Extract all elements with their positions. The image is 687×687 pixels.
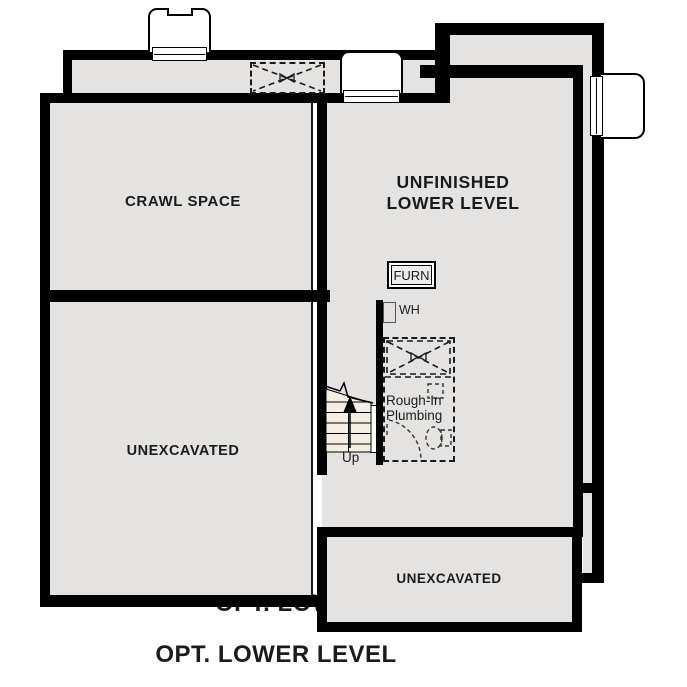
rough-in-plumbing-label: Rough-In Plumbing (386, 394, 442, 423)
plan-title: OPT. LOWER LEVEL (155, 641, 396, 669)
unfinished-lower-level-label: UNFINISHED LOWER LEVEL (387, 172, 520, 214)
unexcavated-left-label: UNEXCAVATED (127, 443, 240, 459)
stairs-up-label: Up (342, 450, 359, 465)
unfinished-line1: UNFINISHED (397, 172, 510, 192)
crawl-space-label: CRAWL SPACE (125, 193, 241, 210)
unfinished-line2: LOWER LEVEL (387, 193, 520, 213)
water-heater-label: WH (399, 303, 420, 317)
unexcavated-bottom-label: UNEXCAVATED (396, 571, 501, 586)
floor-plan: OPT. LOWER LEVEL FURN (0, 0, 687, 687)
plan-linework (0, 0, 687, 687)
plumbing-line1: Rough-In (386, 393, 442, 408)
plumbing-line2: Plumbing (386, 408, 442, 423)
